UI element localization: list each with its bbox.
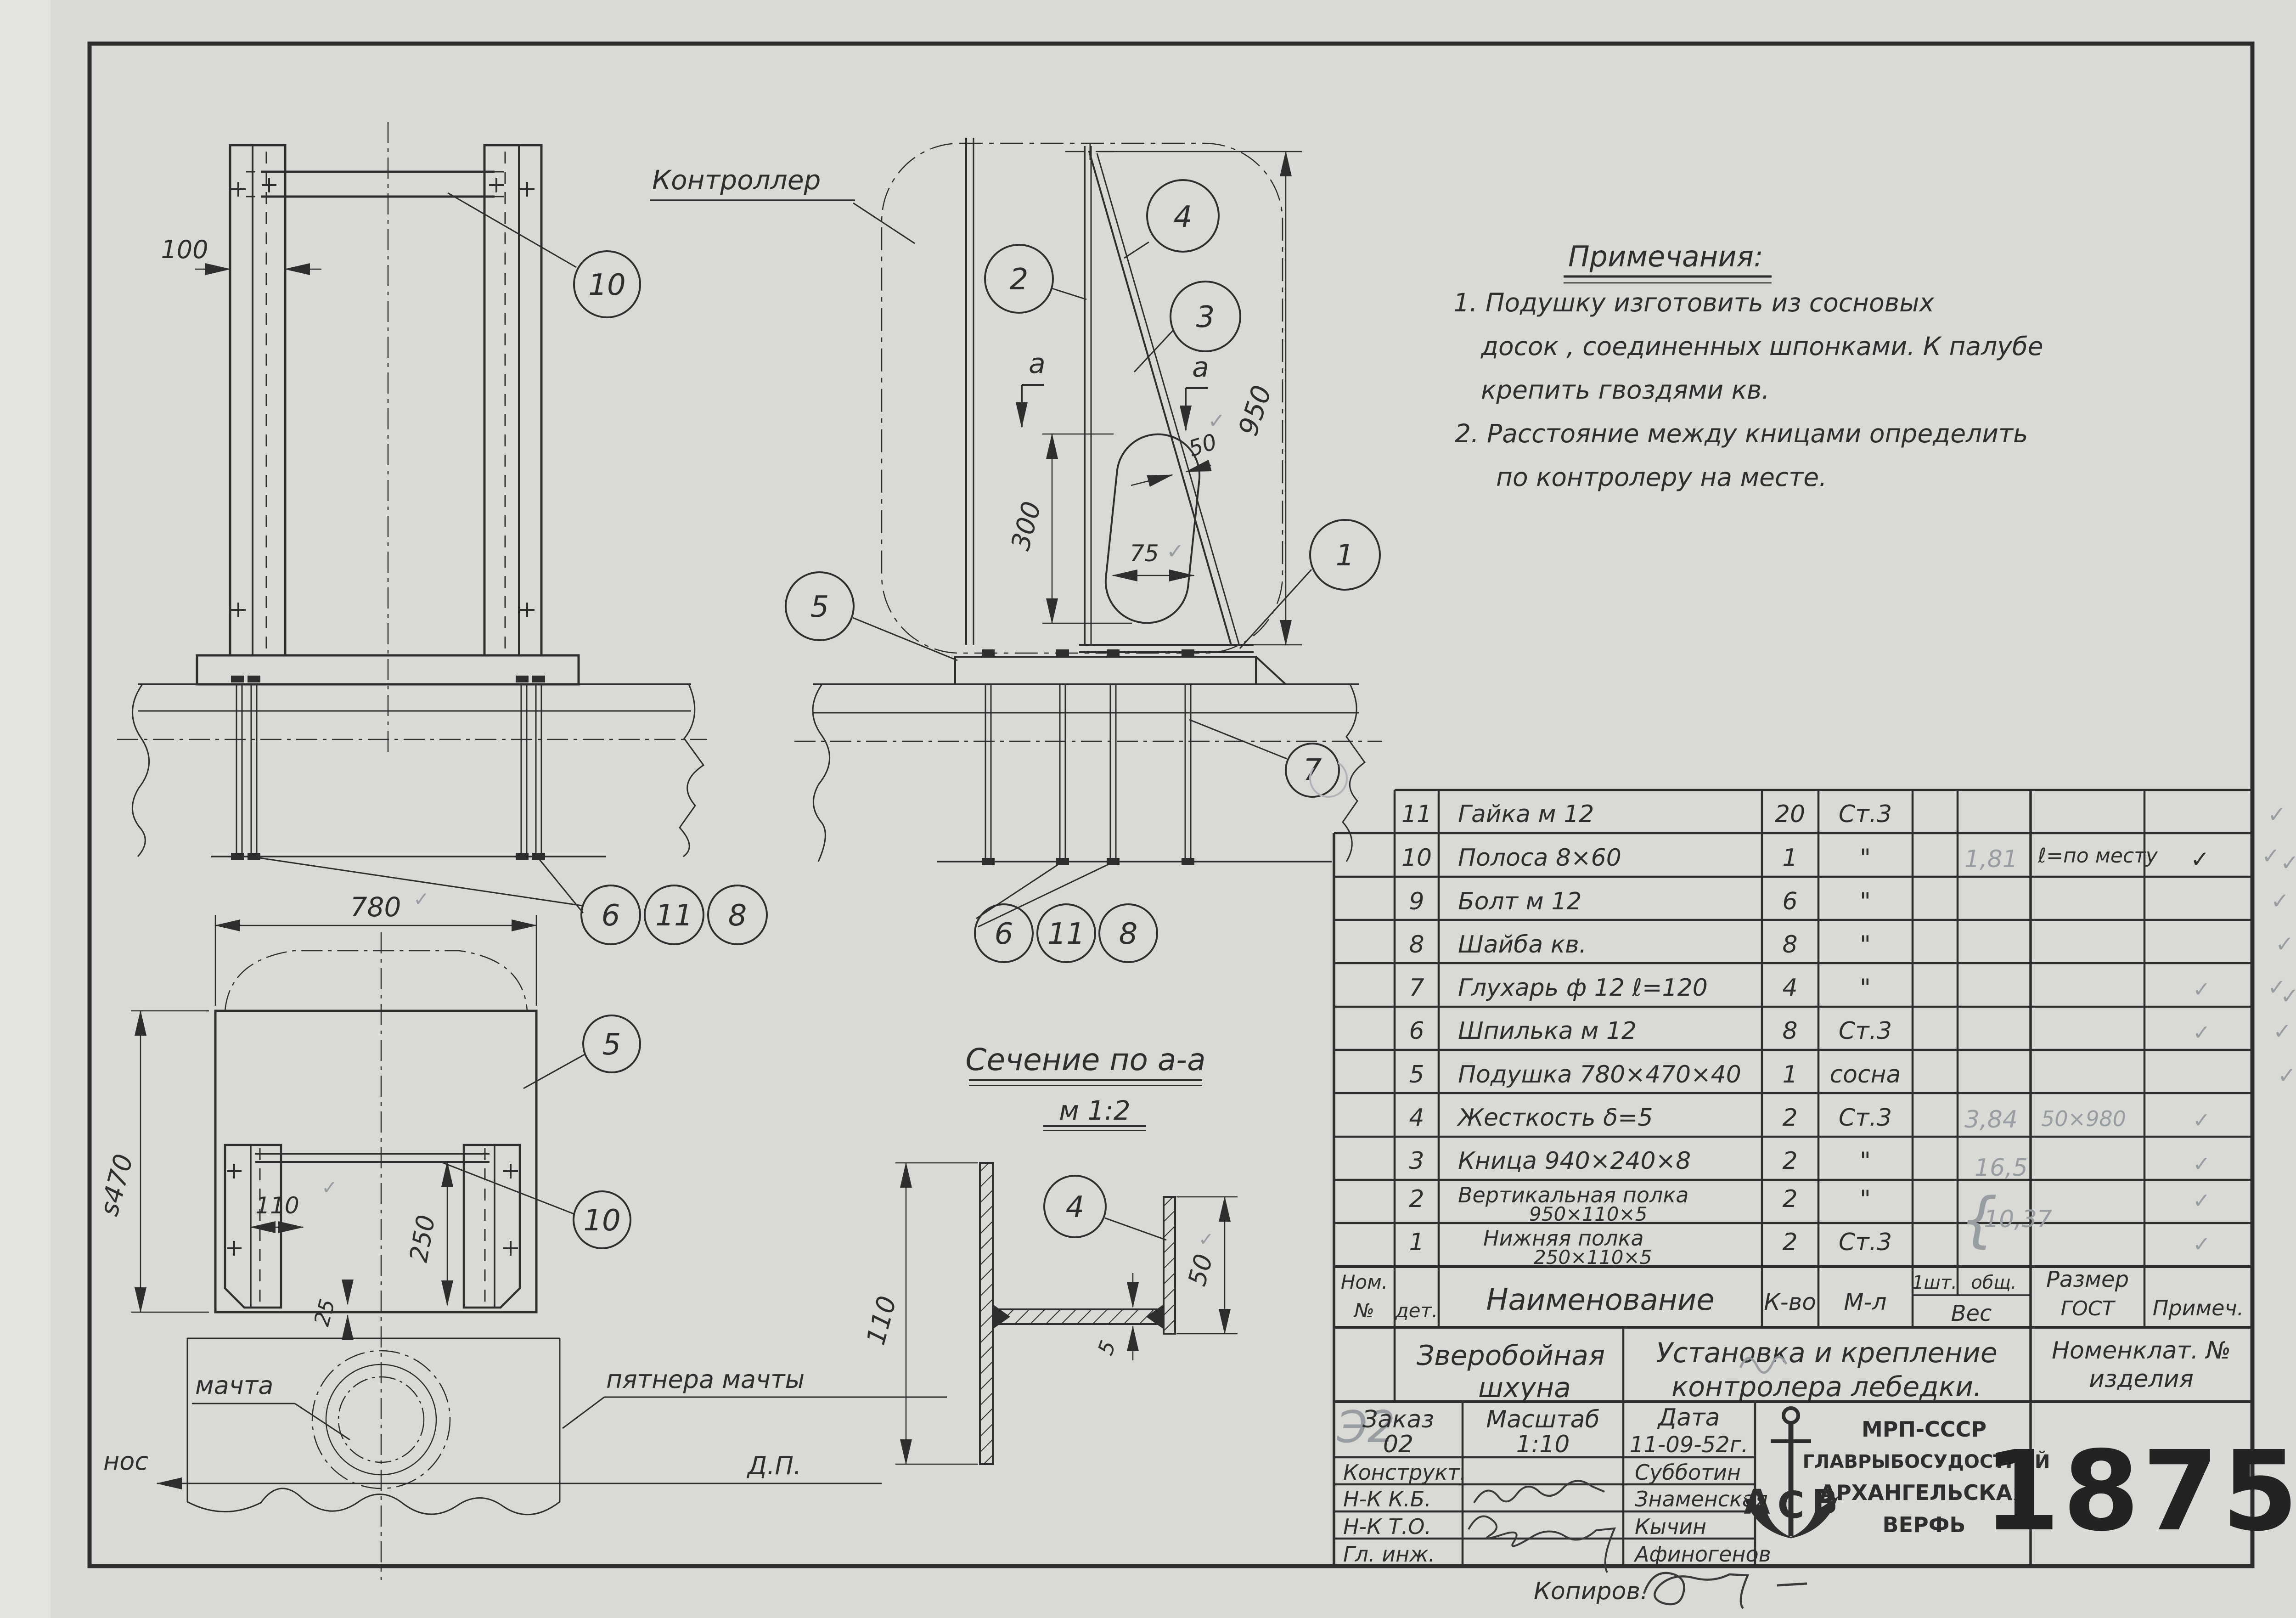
dim-plan-depth: s470 [94,1151,139,1219]
part-mat: Ст.3 [1839,801,1892,828]
pencil-check-drawing-1: ✓ [1208,408,1226,433]
pencil-check-plan-2: ✓ [413,888,429,910]
part-mat: " [1860,974,1871,1002]
role-label-2: Н-К К.Б. [1343,1487,1431,1511]
part-mat: Ст.3 [1839,1229,1892,1256]
part-name: Шайба кв. [1458,931,1587,958]
margin-check: ✓ [2271,888,2289,914]
org-line-1: МРП-СССР [1862,1417,1986,1442]
hdr-weight: Вес [1951,1301,1992,1326]
part-qty: 2 [1782,1104,1797,1132]
part-num: 10 [1401,844,1432,872]
part-num: 3 [1409,1147,1424,1175]
dim-slot-width: 75 [1130,540,1159,567]
logo-letter-c: С [1778,1484,1805,1527]
notes-block: Примечания: 1. Подушку изготовить из сос… [1453,240,2043,492]
scale-label: Масштаб [1486,1406,1599,1433]
centerplane-label: Д.П. [747,1451,801,1480]
part-name: Глухарь ф 12 ℓ=120 [1458,974,1708,1002]
role-name-1: Субботин [1635,1460,1741,1485]
dim-plan-width: 780 [350,891,401,923]
callout-10-front: 10 [588,268,625,302]
part-check: ✓ [2193,1151,2211,1176]
part-num: 11 [1401,801,1432,828]
plan-view [131,915,947,1580]
bow-label: нос [103,1447,148,1476]
margin-check: ✓ [2273,1019,2291,1044]
scale-value: 1:10 [1516,1431,1570,1458]
hdr-no: № [1353,1299,1374,1322]
part-num: 1 [1409,1229,1424,1256]
dim-sec-height: 110 [861,1293,902,1348]
project-line-1: Зверобойная [1417,1340,1605,1372]
margin-check: ✓ [2262,843,2280,869]
part-qty: 8 [1782,1017,1797,1045]
copier-label: Копиров. [1534,1578,1648,1605]
note-line-3: крепить гвоздями кв. [1481,375,1770,405]
part-num: 8 [1409,931,1424,958]
part-num: 4 [1409,1104,1424,1132]
title-line-2: контролера лебедки. [1671,1371,1982,1403]
part-size: ℓ=по месту [2037,844,2158,868]
note-line-1: 1. Подушку изготовить из сосновых [1453,288,1934,317]
note-line-4: 2. Расстояние между кницами определить [1455,419,2028,448]
title-line-1: Установка и крепление [1656,1337,1998,1369]
margin-check: ✓ [2278,1063,2296,1088]
margin-check: ✓ [2280,983,2296,1009]
mast-step-label: пятнера мачты [606,1365,805,1394]
dim-side-height: 950 [1232,382,1278,440]
org-line-4: ВЕРФЬ [1883,1512,1966,1537]
part-qty: 2 [1782,1229,1797,1256]
part-name: Жесткость δ=5 [1457,1104,1653,1132]
hdr-w2: общ. [1971,1272,2017,1293]
part-check: ✓ [2193,1020,2211,1045]
copier-dash [1777,1584,1807,1585]
date-value: 11-09-52г. [1630,1432,1748,1458]
margin-check: ✓ [2275,931,2294,957]
dim-stiffener-width: 50 [1185,429,1220,462]
part-qty: 2 [1782,1147,1797,1175]
callout-3-side: 3 [1196,300,1215,334]
part-qty: 6 [1782,888,1797,915]
pencil-check-drawing-2: ✓ [1166,539,1184,564]
margin-checks: ✓ ✓ ✓ ✓ ✓ ✓ ✓ ✓ ✓ [2262,802,2296,1088]
dim-leg-offset: 110 [255,1192,299,1219]
dim-legs-span: 250 [404,1213,441,1264]
dim-slot-height: 300 [1006,498,1047,553]
hdr-nom: Ном. [1341,1271,1388,1293]
logo-letter-a: А [1744,1483,1770,1522]
part-weight-pencil: 3,84 [1964,1106,2018,1133]
part-qty: 2 [1782,1185,1797,1213]
part-check: ✓ [2190,846,2210,873]
date-label: Дата [1657,1404,1720,1432]
mast-label: мачта [195,1371,273,1400]
notes-title: Примечания: [1568,240,1763,273]
project-line-2: шхуна [1478,1372,1571,1404]
part-name: Подушка 780×470×40 [1458,1061,1741,1088]
part-qty: 8 [1782,931,1797,958]
controller-label: Контроллер [652,164,821,196]
hdr-det: дет. [1395,1299,1438,1322]
role-name-3: Кычин [1635,1514,1706,1539]
margin-check: ✓ [2280,850,2296,876]
note-line-2: досок , соединенных шпонками. К палубе [1480,332,2043,361]
part-qty: 20 [1775,801,1805,828]
side-view [794,138,1382,927]
callout-5-side: 5 [810,590,829,624]
section-scale: м 1:2 [1059,1095,1131,1126]
callout-11-side: 11 [1047,917,1085,951]
hdr-mat: М-л [1844,1289,1886,1315]
part-weight-pencil: 1,81 [1964,846,2018,873]
part-mat: " [1860,1185,1871,1213]
dim-edge-offset: 25 [309,1297,340,1329]
part-size-pencil: 50×980 [2041,1106,2126,1131]
part-name: Полоса 8×60 [1458,844,1621,872]
hdr-note: Примеч. [2153,1296,2244,1320]
callout-5-plan: 5 [602,1028,621,1062]
part-mat: Ст.3 [1839,1104,1892,1132]
part-check: ✓ [2193,1232,2211,1257]
note-line-5: по контролеру на месте. [1496,462,1827,492]
callout-10-plan: 10 [583,1204,620,1238]
pencil-check-section: ✓ [1199,1229,1214,1250]
part-name2: 250×110×5 [1534,1246,1652,1268]
section-mark-right: а [1192,351,1209,383]
part-mat: " [1860,844,1871,872]
part-qty: 1 [1782,1061,1797,1088]
dim-sec-flange: 50 [1182,1251,1219,1289]
callout-8-side: 8 [1119,917,1138,951]
part-check: ✓ [2193,977,2211,1002]
parts-table-header: Ном. № дет. Наименование К-во М-л 1шт. о… [1341,1267,2244,1326]
dim-front-width: 100 [161,235,208,264]
callout-2-side: 2 [1010,263,1029,297]
part-mat: " [1860,888,1871,915]
part-name: Кница 940×240×8 [1458,1147,1691,1175]
part-num: 5 [1409,1061,1424,1088]
callout-4-section: 4 [1066,1190,1085,1224]
callout-1-side: 1 [1336,539,1355,573]
part-qty: 1 [1782,844,1797,872]
part-name: Болт м 12 [1458,888,1581,915]
part-qty: 4 [1782,974,1797,1002]
part-name: Гайка м 12 [1458,801,1594,828]
part-num: 9 [1409,888,1424,915]
drawing-canvas: 100 [0,0,2296,1618]
part-mat: " [1860,931,1871,958]
order-label: Заказ [1362,1406,1434,1433]
drawing-number: 1875 [1983,1427,2296,1556]
part-mat: сосна [1830,1061,1901,1088]
part-num: 2 [1409,1185,1424,1213]
part-check: ✓ [2193,1188,2211,1213]
section-title: Сечение по а-а [965,1042,1205,1077]
dim-sec-web: 5 [1093,1337,1121,1359]
nomen-line-1: Номенклат. № [2052,1337,2231,1364]
pencil-check-plan: ✓ [321,1176,338,1199]
hdr-gost: ГОСТ [2061,1297,2116,1320]
brace-glyph: { [1960,1184,1998,1254]
callout-8-front: 8 [728,899,747,933]
part-name2: 950×110×5 [1529,1203,1647,1225]
callout-11-front: 11 [655,899,692,933]
margin-check: ✓ [2268,802,2286,828]
part-mat: " [1860,1147,1871,1175]
hdr-size: Размер [2046,1267,2129,1292]
part-name: Шпилька м 12 [1458,1017,1637,1045]
role-label-3: Н-К Т.О. [1343,1514,1431,1539]
callout-6-front: 6 [602,899,620,933]
copier-signature [1644,1573,1748,1608]
part-num: 6 [1409,1017,1424,1045]
callout-4-side: 4 [1174,200,1193,234]
hdr-w1: 1шт. [1912,1272,1957,1293]
hdr-name: Наименование [1486,1283,1714,1317]
part-weight-pencil: 16,5 [1975,1154,2028,1182]
role-label-1: Конструкт. [1343,1460,1467,1485]
callout-6-side: 6 [995,917,1013,951]
hdr-qty: К-во [1764,1289,1816,1315]
section-mark-left: а [1029,348,1046,380]
order-value: 02 [1383,1431,1413,1458]
nomen-line-2: изделия [2089,1365,2194,1393]
part-mat: Ст.3 [1839,1017,1892,1045]
part-num: 7 [1409,974,1424,1002]
blueprint-sheet: 100 [0,0,2296,1618]
part-check: ✓ [2193,1108,2211,1133]
role-name-4: Афиногенов [1633,1542,1771,1567]
role-label-4: Гл. инж. [1343,1542,1435,1567]
